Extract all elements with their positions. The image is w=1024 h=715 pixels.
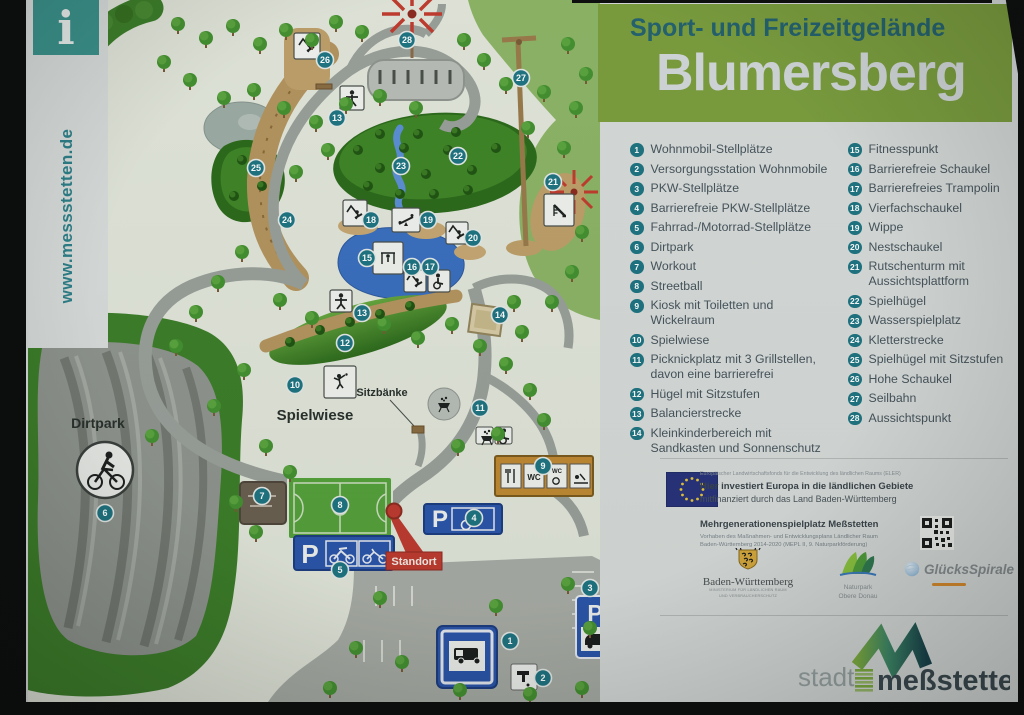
legend-item: 10Spielwiese [630, 333, 830, 348]
info-i-icon: i [57, 5, 74, 51]
city-logo: stadt meßstetten [796, 622, 1010, 698]
legend-item: 13Balancierstrecke [630, 406, 830, 421]
legend-item-number: 17 [848, 182, 862, 196]
legend-item-number: 27 [848, 392, 862, 406]
camper-parking-sign [437, 626, 497, 688]
map-marker-11: 11 [472, 400, 489, 417]
legend-item-label: Hügel mit Sitzstufen [651, 387, 760, 402]
legend-item: 8Streetball [630, 279, 830, 294]
legend-item: 18Vierfachschaukel [848, 201, 1016, 216]
sign-subtitle: Sport- und Freizeitgelände [630, 14, 1012, 43]
legend-item: 5Fahrrad-/Motorrad-Stellplätze [630, 220, 830, 235]
hill-tree-icon [467, 165, 477, 175]
legend-item-number: 3 [630, 182, 644, 196]
hill-tree-icon [451, 127, 461, 137]
legend-item-number: 22 [848, 295, 862, 309]
legend-item-label: Spielhügel mit Sitzstufen [869, 352, 1004, 367]
legend-item-label: Wohnmobil-Stellplätze [651, 142, 773, 157]
dirtpark-label: Dirtpark [71, 415, 125, 431]
hill-tree-icon [229, 191, 239, 201]
legend-item-number: 26 [848, 373, 862, 387]
photo-edge [572, 0, 992, 3]
legend-item-label: Vierfachschaukel [869, 201, 962, 216]
legend-item-label: Kleinkinderbereich mit Sandkasten und So… [651, 426, 831, 456]
legend-panel: Sport- und Freizeitgelände Blumersberg 1… [598, 0, 1018, 702]
legend-item-number: 1 [630, 143, 644, 157]
legend-item-label: Barrierefreies Trampolin [869, 181, 1000, 196]
svg-text:2: 2 [540, 673, 545, 683]
legend-item-number: 7 [630, 260, 644, 274]
water-supply-sign [511, 664, 537, 690]
legend-item-number: 16 [848, 163, 862, 177]
wc-sign-text: WC [527, 473, 541, 482]
legend-item-label: Kletterstrecke [869, 333, 944, 348]
lottery-name: GlücksSpirale [924, 562, 1014, 577]
legend-item-number: 20 [848, 241, 862, 255]
legend-item: 6Dirtpark [630, 240, 830, 255]
map-marker-16: 16 [404, 259, 421, 276]
naturpark-line2: Obere Donau [838, 593, 877, 600]
svg-text:13: 13 [332, 113, 342, 123]
map-marker-27: 27 [513, 70, 530, 87]
map-marker-8: 8 [332, 497, 349, 514]
photo-of-park-info-sign: WC WC [0, 0, 1024, 715]
cofinance-line: mitfinanziert durch das Land Baden-Württ… [700, 494, 930, 504]
legend-item: 17Barrierefreies Trampolin [848, 181, 1016, 196]
legend-item: 26Hohe Schaukel [848, 372, 1016, 387]
map-marker-20: 20 [465, 230, 482, 247]
legend-item-number: 25 [848, 353, 862, 367]
legend-item: 14Kleinkinderbereich mit Sandkasten und … [630, 426, 830, 456]
hill-tree-icon [405, 301, 415, 311]
lottery-tagline-bar [932, 583, 966, 586]
legend-item: 22Spielhügel [848, 294, 1016, 309]
legend-item-number: 12 [630, 388, 644, 402]
hill-tree-icon [429, 189, 439, 199]
legend-item-label: Aussichtspunkt [869, 411, 952, 426]
legend-item: 23Wasserspielplatz [848, 313, 1016, 328]
legend-item-label: Dirtpark [651, 240, 694, 255]
legend-column-2: 15Fitnesspunkt16Barrierefreie Schaukel17… [848, 142, 1016, 430]
legend-item-number: 13 [630, 407, 644, 421]
svg-text:10: 10 [290, 380, 300, 390]
legend-item-label: Fahrrad-/Motorrad-Stellplätze [651, 220, 812, 235]
bw-caption-1: MINISTERIUM FÜR LÄNDLICHEN RAUM [709, 588, 787, 592]
gluecksspirale-logo: GlücksSpirale [904, 558, 1014, 586]
lottery-sphere-icon [904, 558, 920, 580]
legend-item-label: Seilbahn [869, 391, 917, 406]
map-marker-5: 5 [332, 562, 349, 579]
divider [660, 615, 1008, 616]
legend-item: 21Rutschenturm mit Aussichtsplattform [848, 259, 1016, 289]
legend-item-number: 8 [630, 280, 644, 294]
city-name: meßstetten [877, 665, 1010, 697]
legend-item-label: Streetball [651, 279, 703, 294]
svg-text:27: 27 [516, 73, 526, 83]
project-text: Mehrgenerationenspielplatz Meßstetten Vo… [700, 519, 910, 549]
hill-tree-icon [395, 189, 405, 199]
legend-item-number: 23 [848, 314, 862, 328]
svg-text:19: 19 [423, 215, 433, 225]
info-box: i [33, 0, 99, 55]
hill-tree-icon [257, 181, 267, 191]
hill-tree-icon [237, 155, 247, 165]
dirtpark-area [38, 342, 222, 655]
stadt-label: stadt [798, 662, 855, 692]
legend-item: 19Wippe [848, 220, 1016, 235]
legend-item-number: 19 [848, 221, 862, 235]
legend-column-1: 1Wohnmobil-Stellplätze2Versorgungsstatio… [630, 142, 830, 460]
dirtpark-biker-badge [77, 442, 133, 498]
divider [660, 458, 1008, 459]
legend-item-label: Fitnesspunkt [869, 142, 939, 157]
legend-item: 3PKW-Stellplätze [630, 181, 830, 196]
map-marker-1: 1 [502, 633, 519, 650]
legend-item-label: Barrierefreie Schaukel [869, 162, 991, 177]
legend-item-label: Picknickplatz mit 3 Grillstellen, davon … [651, 352, 831, 382]
legend-item-label: Kiosk mit Toiletten und Wickelraum [651, 298, 831, 328]
svg-text:20: 20 [468, 233, 478, 243]
map-marker-12: 12 [337, 335, 354, 352]
legend-item-number: 28 [848, 412, 862, 426]
info-sign-panel: WC WC [26, 0, 1018, 702]
svg-text:1: 1 [507, 636, 512, 646]
hill-tree-icon [353, 145, 363, 155]
website-url: www.messstetten.de [57, 96, 79, 336]
map-marker-2: 2 [535, 670, 552, 687]
legend-item: 12Hügel mit Sitzstufen [630, 387, 830, 402]
legend-item: 28Aussichtspunkt [848, 411, 1016, 426]
invest-line: Hier investiert Europa in die ländlichen… [700, 481, 930, 492]
hill-tree-icon [285, 337, 295, 347]
naturpark-hills-icon [836, 550, 880, 578]
legend-item-label: PKW-Stellplätze [651, 181, 740, 196]
hill-tree-icon [421, 169, 431, 179]
svg-text:24: 24 [282, 215, 292, 225]
title-header: Sport- und Freizeitgelände Blumersberg [598, 4, 1012, 122]
map-marker-9: 9 [535, 458, 552, 475]
accessible-parking-sign: P [424, 504, 502, 534]
svg-text:23: 23 [396, 161, 406, 171]
map-marker-13: 13 [329, 110, 346, 127]
legend-item-label: Hohe Schaukel [869, 372, 952, 387]
standort-label: Standort [391, 556, 437, 568]
legend-item: 20Nestschaukel [848, 240, 1016, 255]
map-marker-3: 3 [582, 580, 599, 597]
legend-item-label: Balancierstrecke [651, 406, 742, 421]
map-marker-21: 21 [545, 174, 562, 191]
map-marker-17: 17 [422, 259, 439, 276]
svg-text:P: P [301, 539, 318, 569]
legend-item-label: Workout [651, 259, 697, 274]
legend-item-label: Nestschaukel [869, 240, 943, 255]
map-marker-6: 6 [97, 505, 114, 522]
bw-crest-icon [731, 548, 765, 570]
legend-item: 25Spielhügel mit Sitzstufen [848, 352, 1016, 367]
svg-text:15: 15 [362, 253, 372, 263]
legend-item-number: 11 [630, 353, 644, 367]
hedge-tree [135, 1, 153, 19]
naturpark-logo: Naturpark Obere Donau [820, 550, 896, 602]
legend-item-number: 10 [630, 334, 644, 348]
svg-text:12: 12 [340, 338, 350, 348]
sitzbaenke-label: Sitzbänke [356, 387, 407, 399]
map-marker-10: 10 [287, 377, 304, 394]
hill-tree-icon [375, 163, 385, 173]
legend-item-label: Spielwiese [651, 333, 710, 348]
svg-text:P: P [432, 506, 448, 533]
partner-logos: Baden-Württemberg MINISTERIUM FÜR LÄNDLI… [660, 548, 1010, 600]
bw-name: Baden-Württemberg [688, 576, 808, 588]
map-marker-4: 4 [466, 510, 483, 527]
sidebar: i www.messstetten.de [28, 0, 108, 348]
hill-tree-icon [491, 143, 501, 153]
map-marker-14: 14 [492, 307, 509, 324]
map-marker-26: 26 [317, 52, 334, 69]
legend-item-label: Spielhügel [869, 294, 926, 309]
map-marker-25: 25 [248, 160, 265, 177]
hill-tree-icon [315, 325, 325, 335]
project-name: Mehrgenerationenspielplatz Meßstetten [700, 519, 910, 530]
legend-item-label: Barrierefreie PKW-Stellplätze [651, 201, 811, 216]
eu-funding-text: Europäischer Landwirtschaftsfonds für di… [700, 471, 930, 504]
legend-item-number: 24 [848, 334, 862, 348]
park-map-graphic: WC WC [28, 0, 600, 702]
map-marker-18: 18 [363, 212, 380, 229]
legend-item-number: 9 [630, 299, 644, 313]
bw-caption-2: UND VERBRAUCHERSCHUTZ [719, 594, 777, 598]
eler-line: Europäischer Landwirtschaftsfonds für di… [700, 471, 930, 477]
svg-text:4: 4 [471, 513, 476, 523]
legend-item-number: 4 [630, 202, 644, 216]
sign-title: Blumersberg [656, 43, 1012, 103]
svg-text:7: 7 [259, 491, 264, 501]
legend-item: 1Wohnmobil-Stellplätze [630, 142, 830, 157]
hill-tree-icon [363, 181, 373, 191]
legend-item: 9Kiosk mit Toiletten und Wickelraum [630, 298, 830, 328]
legend-item-number: 21 [848, 260, 862, 274]
legend-item-number: 18 [848, 202, 862, 216]
legend-item-label: Wippe [869, 220, 904, 235]
hill-tree-icon [463, 185, 473, 195]
svg-text:11: 11 [475, 403, 485, 413]
map-marker-23: 23 [393, 158, 410, 175]
svg-text:16: 16 [407, 262, 417, 272]
legend-item: 11Picknickplatz mit 3 Grillstellen, davo… [630, 352, 830, 382]
map-marker-7: 7 [254, 488, 271, 505]
legend-item-number: 15 [848, 143, 862, 157]
svg-text:26: 26 [320, 55, 330, 65]
hill-tree-icon [399, 143, 409, 153]
map-marker-13: 13 [354, 305, 371, 322]
svg-text:5: 5 [337, 565, 342, 575]
map-marker-22: 22 [450, 148, 467, 165]
map-marker-19: 19 [420, 212, 437, 229]
svg-text:3: 3 [587, 583, 592, 593]
legend-item: 2Versorgungsstation Wohnmobile [630, 162, 830, 177]
legend-item-label: Rutschenturm mit Aussichtsplattform [869, 259, 1017, 289]
naturpark-line1: Naturpark [844, 584, 873, 591]
hill-tree-icon [375, 309, 385, 319]
program-line1: Vorhaben des Maßnahmen- und Entwicklungs… [700, 534, 878, 540]
legend-item: 4Barrierefreie PKW-Stellplätze [630, 201, 830, 216]
legend-item-label: Wasserspielplatz [869, 313, 962, 328]
legend-item-number: 14 [630, 427, 644, 441]
map-marker-15: 15 [359, 250, 376, 267]
svg-text:21: 21 [548, 177, 558, 187]
svg-text:8: 8 [337, 500, 342, 510]
legend-item: 15Fitnesspunkt [848, 142, 1016, 157]
legend-item: 16Barrierefreie Schaukel [848, 162, 1016, 177]
baden-wuerttemberg-logo: Baden-Württemberg MINISTERIUM FÜR LÄNDLI… [688, 548, 808, 599]
legend-item: 7Workout [630, 259, 830, 274]
map-marker-24: 24 [279, 212, 296, 229]
hedge-tree [115, 5, 133, 23]
legend-item-number: 5 [630, 221, 644, 235]
hill-tree-icon [413, 129, 423, 139]
svg-text:18: 18 [366, 215, 376, 225]
legend-item-number: 6 [630, 241, 644, 255]
svg-text:6: 6 [102, 508, 107, 518]
svg-text:WC: WC [552, 469, 563, 475]
svg-text:17: 17 [425, 262, 435, 272]
map-marker-28: 28 [399, 32, 416, 49]
legend-item-number: 2 [630, 163, 644, 177]
svg-text:22: 22 [453, 151, 463, 161]
spielwiese-label: Spielwiese [277, 407, 354, 424]
legend-item-label: Versorgungsstation Wohnmobile [651, 162, 828, 177]
svg-text:9: 9 [540, 461, 545, 471]
hill-tree-icon [375, 129, 385, 139]
svg-text:14: 14 [495, 310, 505, 320]
svg-text:25: 25 [251, 163, 261, 173]
hill-tree-icon [345, 317, 355, 327]
legend-item: 24Kletterstrecke [848, 333, 1016, 348]
legend-item: 27Seilbahn [848, 391, 1016, 406]
park-map: WC WC [28, 0, 600, 702]
svg-text:28: 28 [402, 35, 412, 45]
svg-text:13: 13 [357, 308, 367, 318]
